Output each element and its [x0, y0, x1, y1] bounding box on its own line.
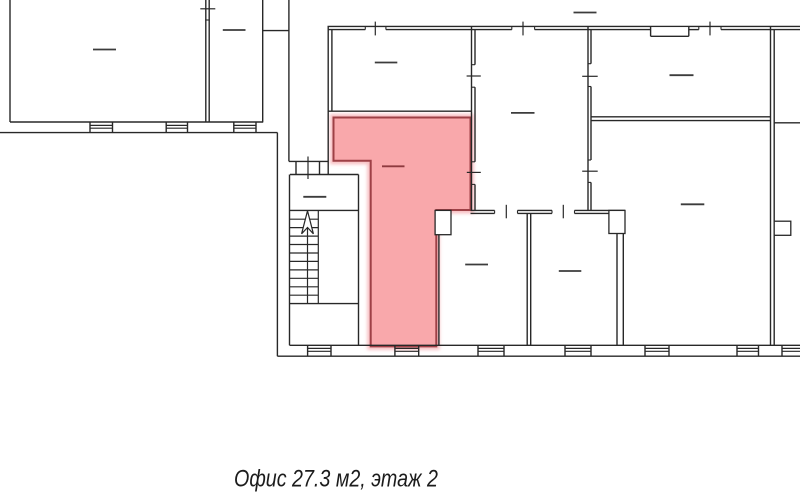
svg-text:Офис 27.3 м2, этаж 2: Офис 27.3 м2, этаж 2: [234, 466, 438, 493]
